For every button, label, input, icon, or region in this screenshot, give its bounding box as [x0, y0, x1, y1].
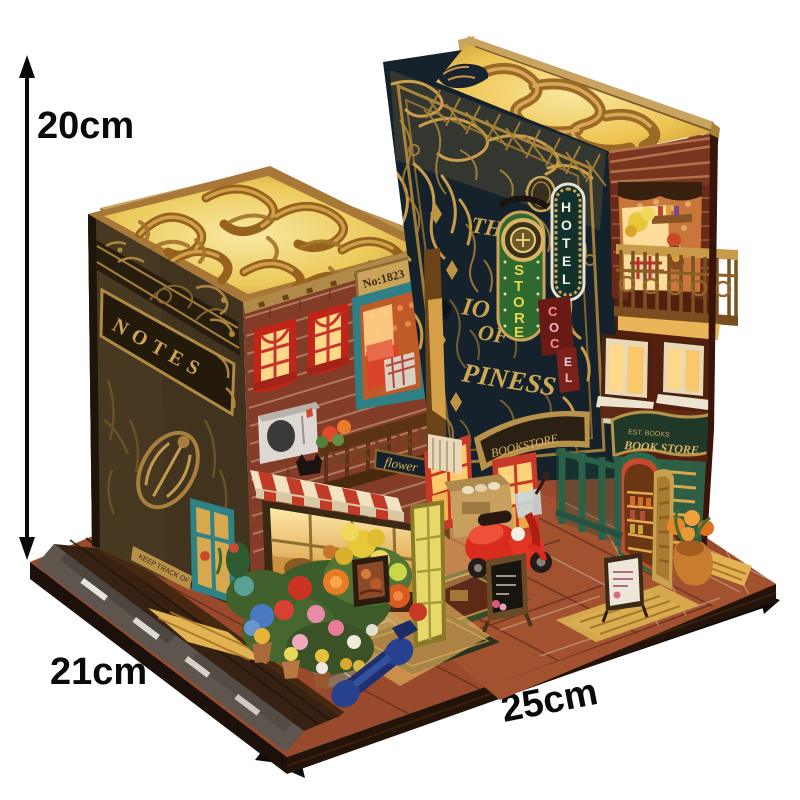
- svg-text:E: E: [562, 253, 571, 269]
- svg-text:O: O: [549, 320, 559, 335]
- svg-text:O: O: [561, 217, 572, 233]
- svg-text:21cm: 21cm: [50, 651, 147, 693]
- svg-text:O: O: [513, 294, 525, 311]
- svg-text:S: S: [514, 262, 524, 279]
- svg-text:C: C: [548, 304, 558, 319]
- svg-text:L: L: [565, 371, 572, 385]
- svg-text:C: C: [550, 336, 560, 351]
- svg-text:20cm: 20cm: [37, 105, 134, 147]
- svg-text:H: H: [561, 199, 571, 215]
- svg-text:L: L: [562, 271, 571, 287]
- svg-text:E: E: [514, 324, 524, 341]
- svg-text:T: T: [514, 278, 523, 295]
- svg-text:E: E: [564, 355, 572, 369]
- svg-text:T: T: [562, 235, 571, 251]
